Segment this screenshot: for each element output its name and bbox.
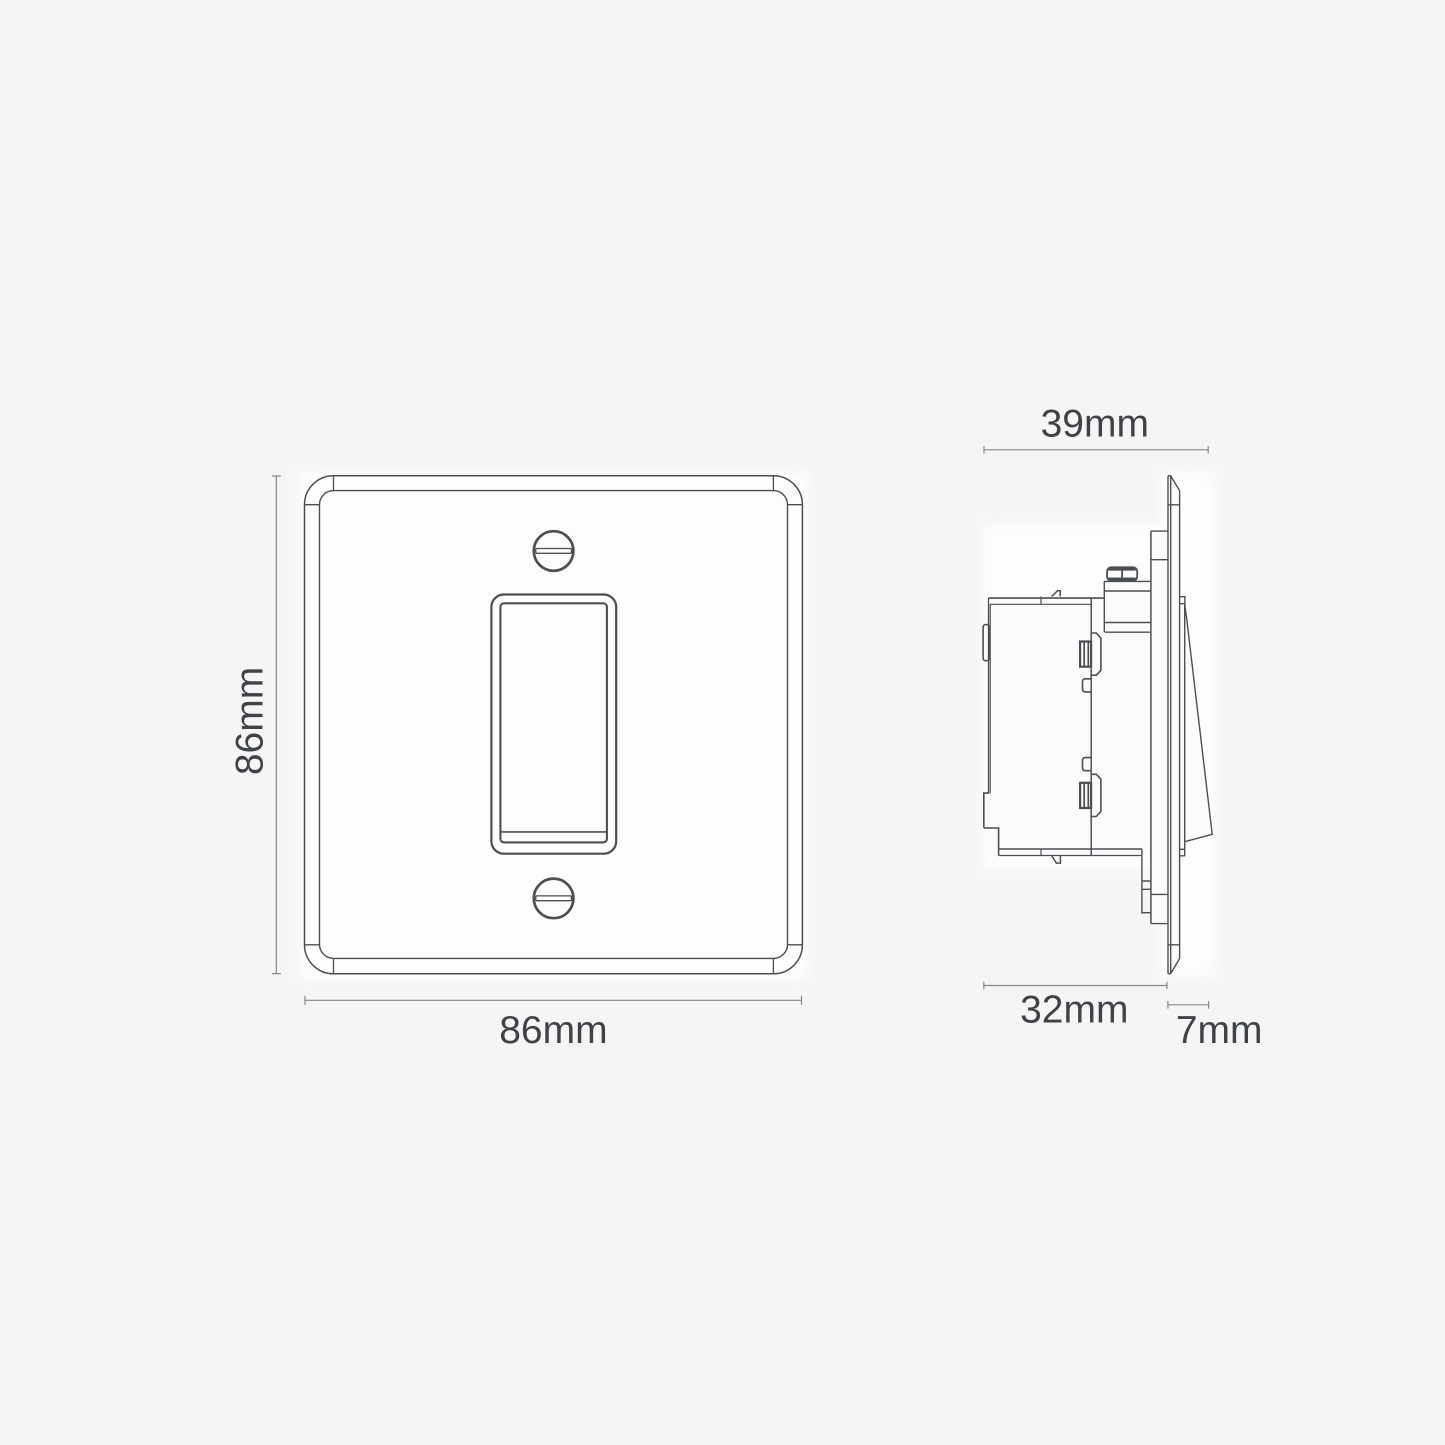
svg-text:32mm: 32mm bbox=[1020, 988, 1128, 1031]
svg-text:39mm: 39mm bbox=[1041, 403, 1149, 446]
svg-text:7mm: 7mm bbox=[1176, 1009, 1263, 1052]
svg-text:86mm: 86mm bbox=[499, 1009, 607, 1052]
svg-text:86mm: 86mm bbox=[229, 667, 272, 775]
